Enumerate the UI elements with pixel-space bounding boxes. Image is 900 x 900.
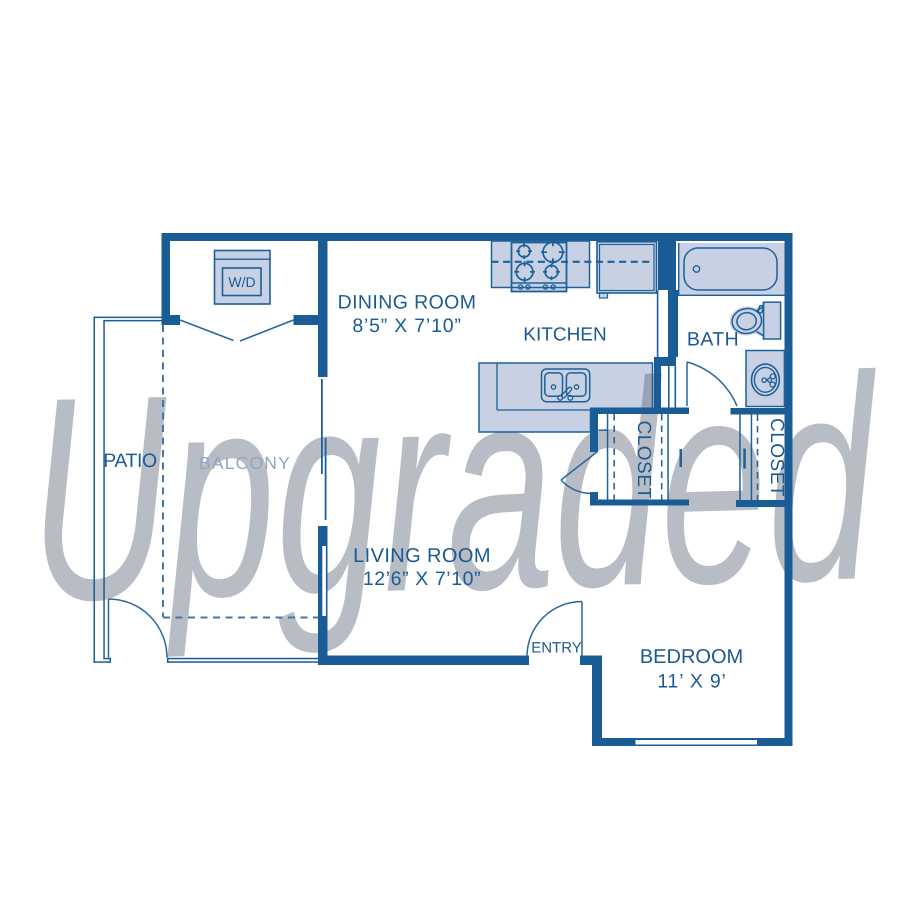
svg-text:CLOSET: CLOSET xyxy=(633,420,654,499)
svg-text:BALCONY: BALCONY xyxy=(199,453,291,473)
svg-text:CLOSET: CLOSET xyxy=(766,418,787,497)
svg-text:W/D: W/D xyxy=(228,274,255,290)
svg-text:ENTRY: ENTRY xyxy=(531,640,582,657)
svg-text:11’ X 9’: 11’ X 9’ xyxy=(657,671,726,693)
svg-text:LIVING ROOM: LIVING ROOM xyxy=(353,545,491,567)
svg-text:DINING ROOM: DINING ROOM xyxy=(338,292,477,314)
svg-text:KITCHEN: KITCHEN xyxy=(523,325,606,346)
svg-text:BATH: BATH xyxy=(687,329,739,351)
svg-text:8’5” X 7’10”: 8’5” X 7’10” xyxy=(352,315,461,337)
svg-text:PATIO: PATIO xyxy=(103,450,157,472)
svg-text:12’6” X 7’10”: 12’6” X 7’10” xyxy=(363,568,481,590)
svg-text:BEDROOM: BEDROOM xyxy=(640,646,743,668)
